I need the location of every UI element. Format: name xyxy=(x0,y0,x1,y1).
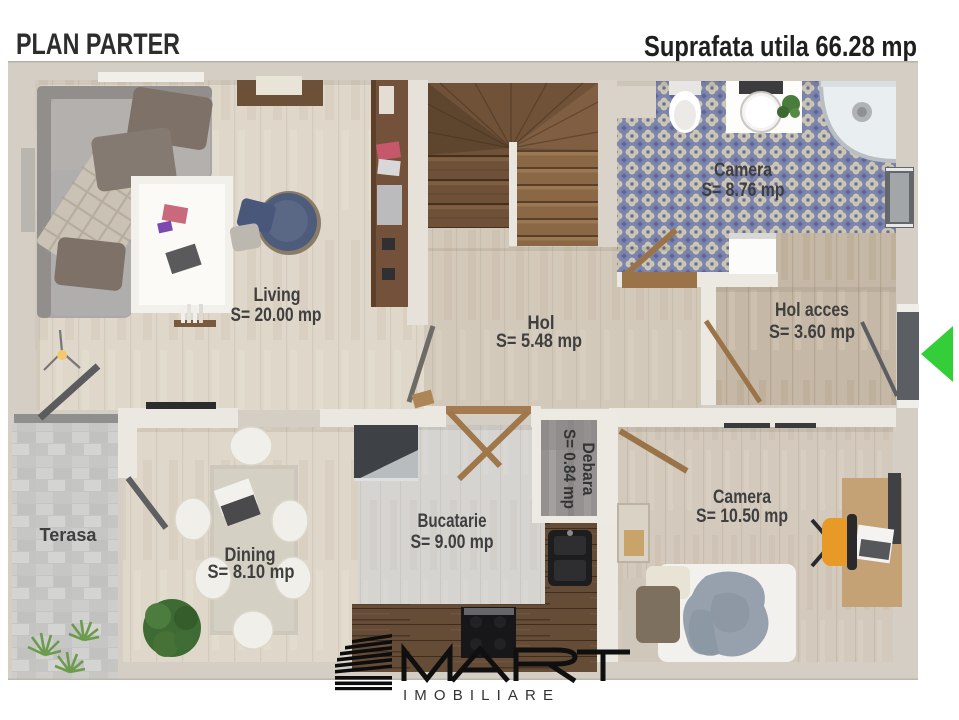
svg-text:S= 3.60 mp: S= 3.60 mp xyxy=(769,322,855,343)
svg-text:S= 10.50 mp: S= 10.50 mp xyxy=(696,506,788,527)
svg-text:PLAN PARTER: PLAN PARTER xyxy=(16,28,180,61)
svg-text:Bucatarie: Bucatarie xyxy=(418,511,487,532)
svg-text:Camera: Camera xyxy=(713,487,771,508)
svg-text:S= 8.10 mp: S= 8.10 mp xyxy=(208,562,295,583)
svg-text:S= 5.48 mp: S= 5.48 mp xyxy=(496,331,582,352)
svg-text:Suprafata utila 66.28 mp: Suprafata utila 66.28 mp xyxy=(644,31,917,63)
svg-text:Debara: Debara xyxy=(579,443,598,497)
svg-text:Hol acces: Hol acces xyxy=(775,300,849,321)
svg-text:Camera: Camera xyxy=(714,160,772,181)
svg-text:S= 0.84 mp: S= 0.84 mp xyxy=(560,429,579,509)
svg-text:S= 20.00 mp: S= 20.00 mp xyxy=(231,305,322,326)
svg-text:S= 8.76 mp: S= 8.76 mp xyxy=(702,180,785,201)
svg-text:S= 9.00 mp: S= 9.00 mp xyxy=(411,532,494,553)
svg-text:Living: Living xyxy=(254,285,301,306)
svg-text:Terasa: Terasa xyxy=(40,525,98,545)
